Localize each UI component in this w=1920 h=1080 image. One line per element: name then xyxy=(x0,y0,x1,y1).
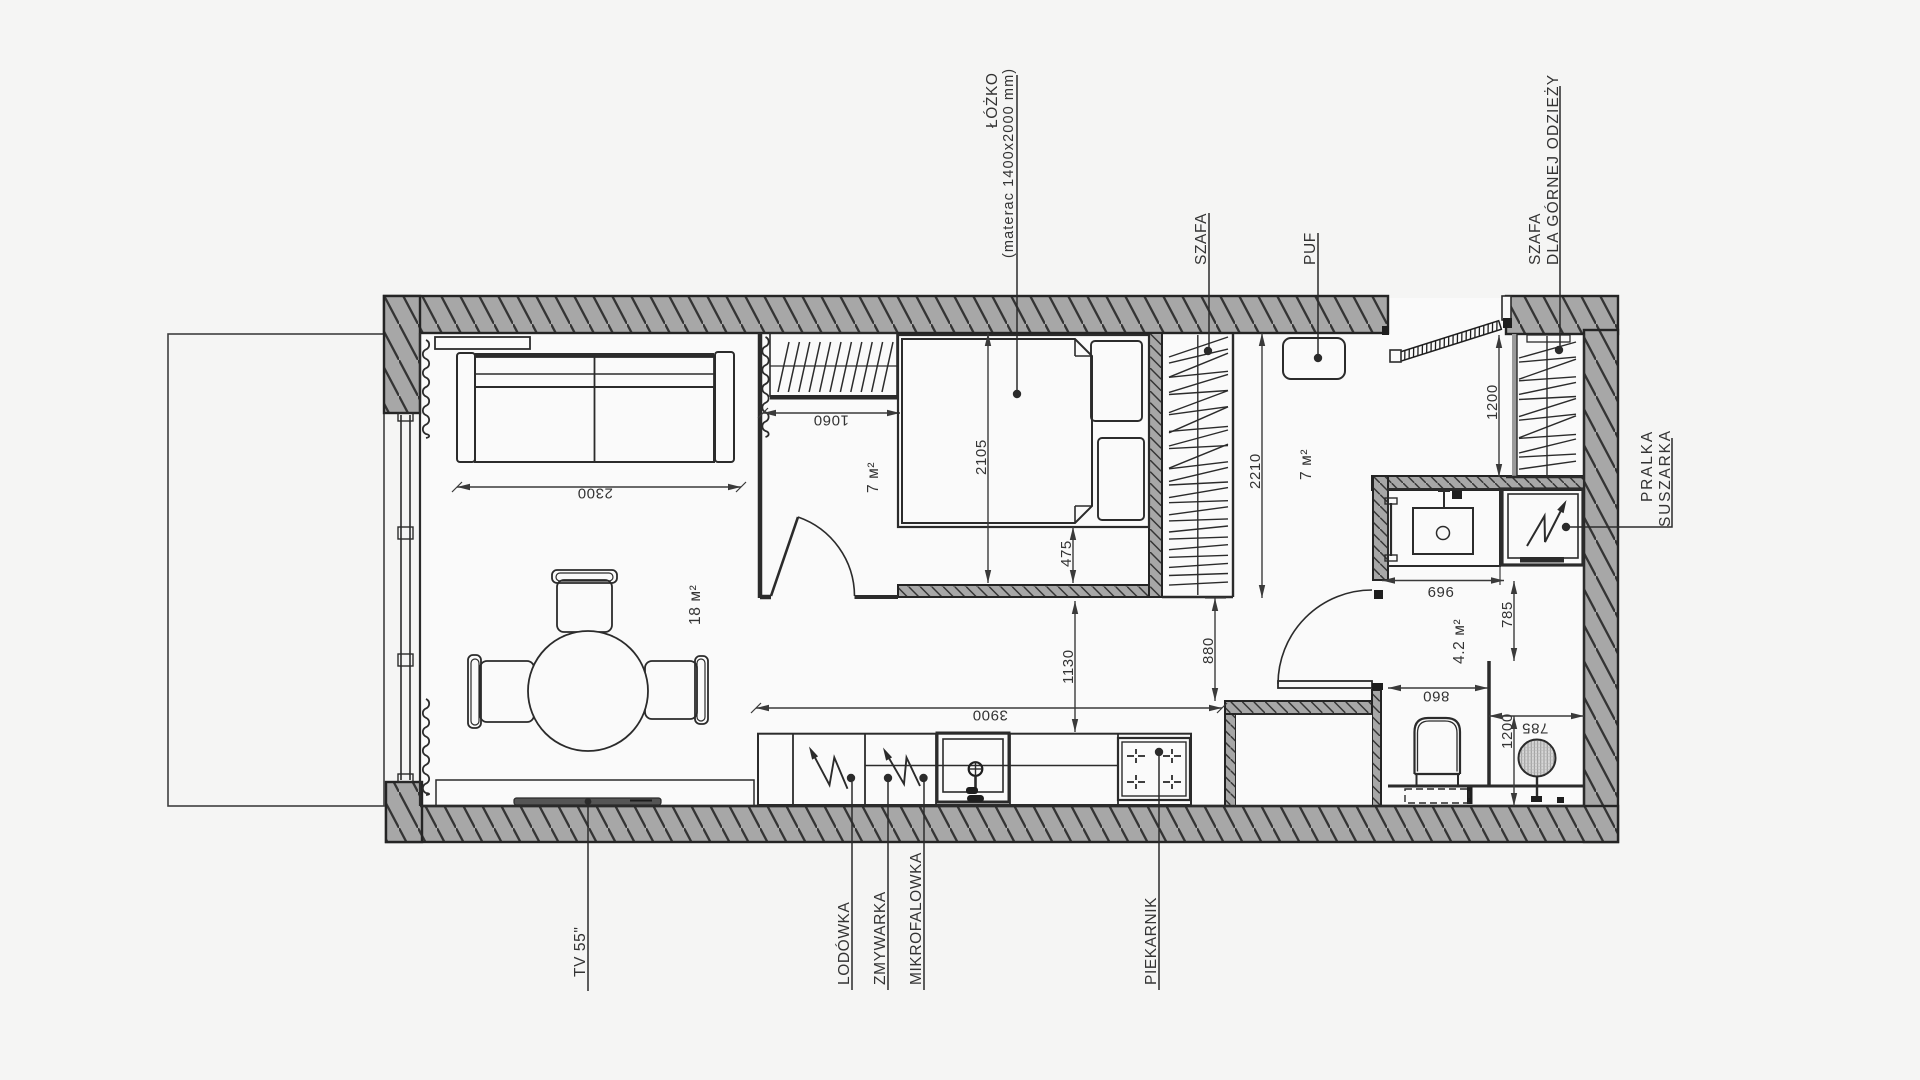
svg-text:7 м²: 7 м² xyxy=(865,462,882,493)
svg-text:(materac 1400x2000 mm): (materac 1400x2000 mm) xyxy=(1001,68,1017,258)
svg-text:ŁÓŻKO: ŁÓŻKO xyxy=(983,72,1001,128)
svg-text:LODÓWKA: LODÓWKA xyxy=(836,902,853,985)
svg-text:SUSZARKA: SUSZARKA xyxy=(1657,429,1674,527)
svg-text:1060: 1060 xyxy=(813,412,849,429)
svg-text:PIEKARNIK: PIEKARNIK xyxy=(1143,897,1160,985)
svg-text:SZAFA: SZAFA xyxy=(1527,213,1544,265)
svg-text:7 м²: 7 м² xyxy=(1298,449,1315,480)
svg-text:18 м²: 18 м² xyxy=(687,585,704,625)
svg-text:696: 696 xyxy=(1428,584,1455,601)
svg-text:2105: 2105 xyxy=(973,439,990,475)
svg-text:ZMYWARKA: ZMYWARKA xyxy=(872,891,889,985)
svg-text:880: 880 xyxy=(1200,637,1217,664)
svg-text:1200: 1200 xyxy=(1499,713,1516,749)
svg-text:785: 785 xyxy=(1499,601,1516,628)
svg-text:SZAFA: SZAFA xyxy=(1193,213,1210,265)
svg-text:2210: 2210 xyxy=(1247,453,1264,489)
svg-text:3900: 3900 xyxy=(972,707,1008,724)
svg-text:860: 860 xyxy=(1423,688,1450,705)
svg-text:1200: 1200 xyxy=(1484,384,1501,420)
svg-text:1130: 1130 xyxy=(1060,649,1077,684)
svg-text:475: 475 xyxy=(1058,540,1075,567)
svg-text:785: 785 xyxy=(1522,720,1549,737)
svg-text:TV 55": TV 55" xyxy=(572,927,589,977)
svg-text:4.2 м²: 4.2 м² xyxy=(1451,619,1468,664)
svg-text:DLA GÓRNEJ ODZIEŻY: DLA GÓRNEJ ODZIEŻY xyxy=(1544,74,1562,265)
svg-text:MIKROFALOWKA: MIKROFALOWKA xyxy=(908,852,925,985)
svg-text:2300: 2300 xyxy=(577,485,613,502)
svg-text:PUF: PUF xyxy=(1302,232,1319,265)
svg-text:PRALKA: PRALKA xyxy=(1639,430,1656,502)
